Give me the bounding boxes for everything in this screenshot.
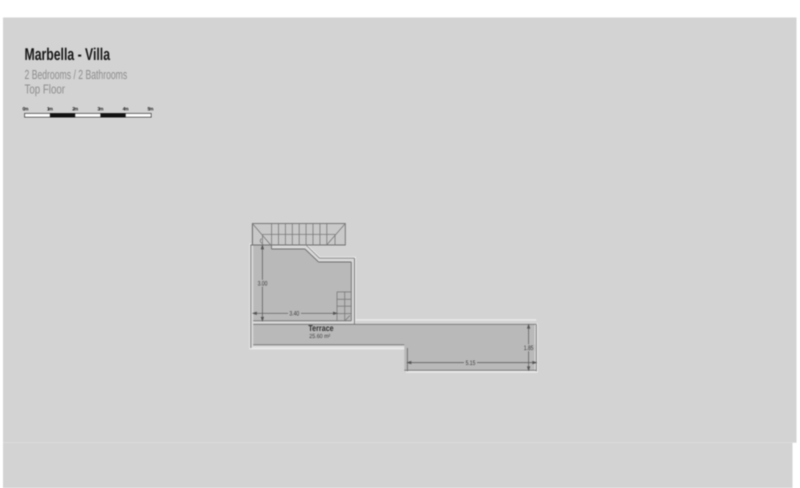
svg-text:5.15: 5.15	[466, 360, 476, 367]
svg-text:0m: 0m	[23, 107, 30, 113]
svg-text:1m: 1m	[47, 107, 54, 113]
svg-text:3.00: 3.00	[258, 280, 268, 287]
svg-text:3.40: 3.40	[289, 310, 299, 317]
svg-text:25.60 m²: 25.60 m²	[309, 333, 330, 340]
svg-text:5m: 5m	[148, 107, 155, 113]
svg-text:3m: 3m	[97, 107, 104, 113]
svg-text:Top Floor: Top Floor	[25, 82, 66, 97]
svg-text:2m: 2m	[72, 107, 79, 113]
svg-text:1.85: 1.85	[524, 345, 534, 352]
svg-text:Marbella - Villa: Marbella - Villa	[25, 45, 111, 64]
svg-text:2 Bedrooms / 2 Bathrooms: 2 Bedrooms / 2 Bathrooms	[25, 67, 128, 82]
svg-text:Terrace: Terrace	[308, 323, 334, 333]
svg-text:4m: 4m	[123, 107, 130, 113]
